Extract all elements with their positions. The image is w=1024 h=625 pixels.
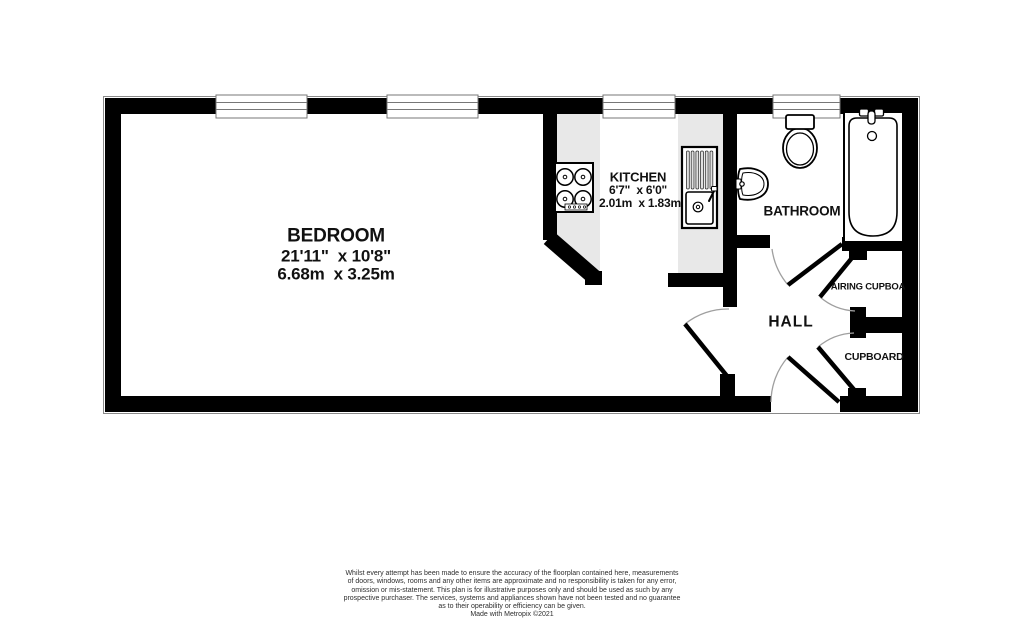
kitchen-window-icon [603,95,675,118]
disclaimer-line: Whilst every attempt has been made to en… [0,570,1024,578]
wall-kitchen-hall [668,273,723,287]
bedroom-dim-imperial: 21'11" x 10'8" [281,248,391,265]
basin-icon [736,168,768,200]
airing-cupboard-label: AIRING CUPBOA [831,282,905,292]
cupboard-label: CUPBOARD [844,352,903,363]
sink-drainer-icon [682,147,717,228]
toilet-icon [783,115,817,168]
wall-chamfer-foot [585,271,602,285]
wall-right [902,98,918,412]
stub-bedroom-door [720,374,735,397]
bedroom-dim-metric: 6.68m x 3.25m [277,266,394,283]
metropix-credit: Made with Metropix ©2021 [0,611,1024,619]
bathroom-label: BATHROOM [764,204,841,218]
bedroom-door-arc [685,309,729,324]
disclaimer: Whilst every attempt has been made to en… [0,570,1024,620]
disclaimer-line: prospective purchaser. The services, sys… [0,595,1024,603]
disclaimer-line: of doors, windows, rooms and any other i… [0,578,1024,586]
bedroom-door-icon [685,324,727,376]
wall-bathroom-corner-stub [737,235,770,248]
front-door-arc [771,357,788,402]
bedroom-label: BEDROOM [287,227,385,246]
post-cupboard-door [848,388,866,397]
kitchen-dim-imperial: 6'7" x 6'0" [609,184,667,196]
bathroom-door-arc [772,249,788,285]
floorplan-page: BEDROOM 21'11" x 10'8" 6.68m x 3.25m KIT… [0,0,1024,625]
wall-kitchen-bathroom [723,113,737,307]
bathtub-icon [844,109,903,242]
bedroom-window-2-icon [387,95,478,118]
stove-icon [555,163,593,212]
kitchen-label: KITCHEN [610,171,666,184]
disclaimer-line: omission or mis-statement. This plan is … [0,587,1024,595]
cupboard-door-arc [818,333,854,347]
wall-left [105,98,121,412]
bedroom-window-1-icon [216,95,307,118]
kitchen-dim-metric: 2.01m x 1.83m [599,197,681,209]
wall-cupboard-divider [866,317,918,333]
floorplan-drawing [0,0,1024,625]
wall-bottom-left [105,396,771,412]
hall-label: HALL [768,314,813,330]
airing-cupboard-door-arc [820,297,855,311]
